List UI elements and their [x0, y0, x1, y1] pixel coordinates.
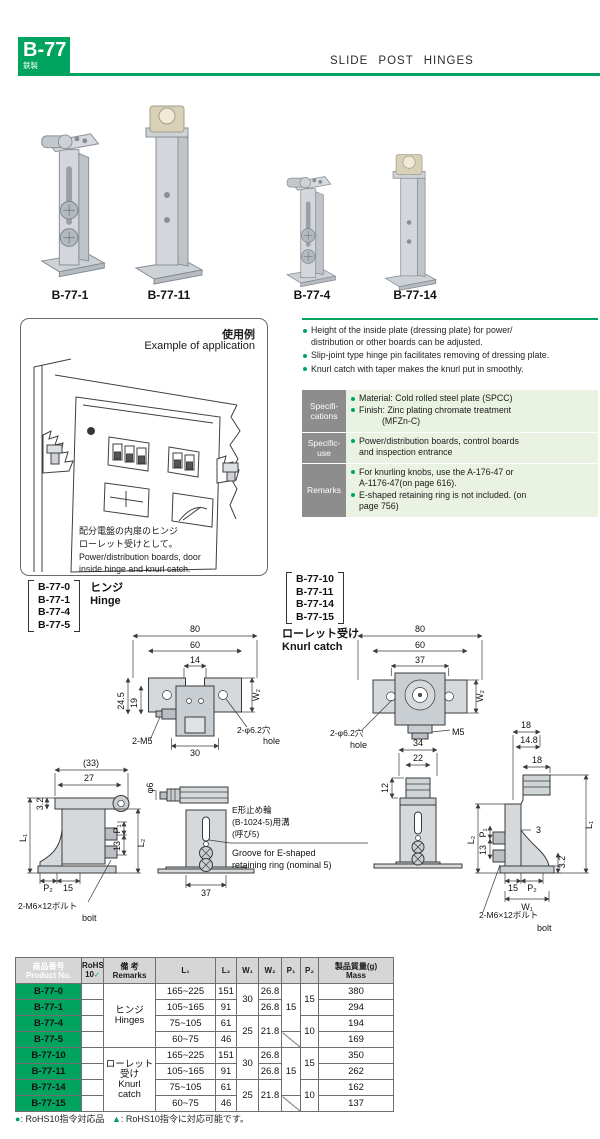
feature-item: Knurl catch with taper makes the knurl p…: [302, 364, 600, 376]
bullet-icon: [351, 470, 355, 474]
product-no-cell: B-77-14: [16, 1080, 82, 1096]
rohs-cell: [82, 1032, 104, 1048]
svg-text:P₂: P₂: [527, 883, 537, 893]
bullet-icon: [303, 354, 307, 358]
svg-text:27: 27: [84, 773, 94, 783]
w1-cell: 25: [237, 1080, 259, 1112]
svg-text:19: 19: [129, 698, 139, 708]
feature-text: Height of the inside plate (dressing pla…: [311, 325, 512, 348]
product-no-cell: B-77-10: [16, 1048, 82, 1064]
product-photo-hinge-large: [30, 112, 118, 284]
svg-text:W₂: W₂: [475, 690, 485, 702]
rohs-triangle-icon: ▲: [112, 1114, 121, 1124]
header-p2: P₂: [301, 958, 319, 984]
product-no-cell: B-77-5: [16, 1032, 82, 1048]
svg-text:13: 13: [112, 841, 122, 851]
feature-text: Slip-joint type hinge pin facilitates re…: [311, 350, 549, 362]
svg-text:3.2: 3.2: [35, 798, 45, 811]
w2-cell: 21.8: [259, 1016, 282, 1048]
p2-cell: 10: [301, 1080, 319, 1112]
mass-cell: 194: [319, 1016, 394, 1032]
w1-cell: 30: [237, 984, 259, 1016]
spec-table: Specifi-cations Material: Cold rolled st…: [302, 390, 598, 518]
svg-text:hole: hole: [263, 736, 280, 746]
mass-cell: 262: [319, 1064, 394, 1080]
svg-text:15: 15: [63, 883, 73, 893]
svg-text:(B-1024-5)用溝: (B-1024-5)用溝: [232, 817, 290, 827]
spec-label: Remarks: [302, 464, 346, 517]
l1-cell: 165~225: [156, 1048, 216, 1064]
page-code-box: B-77 鉄製: [18, 37, 70, 73]
spec-label: Specifi-cations: [302, 390, 346, 432]
p2-cell: 15: [301, 1048, 319, 1080]
header-l1: L₁: [156, 958, 216, 984]
rohs-cell: [82, 1000, 104, 1016]
spec-row-remarks: Remarks For knurling knobs, use the A-17…: [302, 464, 598, 518]
knurl-front-view: [374, 750, 462, 868]
rohs-footnote: ●: RoHS10指令対応品 ▲: RoHS10指令に対応可能です。: [15, 1112, 249, 1125]
svg-text:15: 15: [508, 883, 518, 893]
svg-text:P₁: P₁: [112, 824, 122, 833]
mass-cell: 294: [319, 1000, 394, 1016]
svg-text:12: 12: [380, 783, 390, 793]
svg-text:P₁: P₁: [478, 828, 488, 837]
mass-cell: 169: [319, 1032, 394, 1048]
product-no-cell: B-77-1: [16, 1000, 82, 1016]
product-table-wrap: 商品番号Product No. RoHS 10✓ 備 考Remarks L₁ L…: [15, 957, 394, 1112]
svg-text:L₂: L₂: [136, 838, 146, 847]
w1-cell: 25: [237, 1016, 259, 1048]
table-row: B-77-15 60~75 46 137: [16, 1096, 394, 1112]
table-header-row: 商品番号Product No. RoHS 10✓ 備 考Remarks L₁ L…: [16, 958, 394, 984]
rohs-cell: [82, 1096, 104, 1112]
product-label: B-77-4: [282, 288, 342, 302]
svg-text:3.2: 3.2: [557, 856, 567, 869]
l1-cell: 60~75: [156, 1096, 216, 1112]
l2-cell: 91: [216, 1064, 237, 1080]
w2-cell: 26.8: [259, 984, 282, 1000]
svg-text:L₁: L₁: [18, 834, 28, 842]
product-photo-hinge-small: [278, 160, 346, 292]
mass-cell: 350: [319, 1048, 394, 1064]
svg-text:(呼び5): (呼び5): [232, 829, 260, 839]
svg-text:2-M6×12ボルト: 2-M6×12ボルト: [479, 910, 538, 920]
l2-cell: 61: [216, 1080, 237, 1096]
l2-cell: 91: [216, 1000, 237, 1016]
svg-text:(33): (33): [83, 758, 99, 768]
svg-text:Groove for E-shaped: Groove for E-shaped: [232, 848, 316, 858]
svg-text:E形止め輪: E形止め輪: [232, 805, 272, 815]
l1-cell: 75~105: [156, 1016, 216, 1032]
svg-text:bolt: bolt: [537, 923, 552, 933]
remarks-group-knurl: ローレット受け Knurlcatch: [104, 1048, 156, 1112]
svg-text:22: 22: [413, 753, 423, 763]
l1-cell: 105~165: [156, 1000, 216, 1016]
svg-text:37: 37: [201, 888, 211, 898]
svg-text:30: 30: [190, 748, 200, 758]
svg-text:80: 80: [415, 624, 425, 634]
rohs-cell: [82, 1048, 104, 1064]
p1-cell-na: [282, 1032, 301, 1048]
l1-cell: 165~225: [156, 984, 216, 1000]
svg-text:hole: hole: [350, 740, 367, 750]
rohs-cell: [82, 1080, 104, 1096]
product-photo-knurl-large: [122, 100, 217, 290]
svg-text:18: 18: [532, 755, 542, 765]
knurl-top-view: [358, 636, 482, 739]
mass-cell: 137: [319, 1096, 394, 1112]
dimension-labels: 80 60 14 24.5 19 2-M5 30 2-φ6.2穴 hole W₂…: [18, 624, 594, 933]
caption-line: ローレット受けとして。: [79, 538, 264, 551]
table-row: B-77-11 105~165 91 26.8 262: [16, 1064, 394, 1080]
product-label: B-77-1: [40, 288, 100, 302]
w2-cell: 21.8: [259, 1080, 282, 1112]
w2-cell: 26.8: [259, 1064, 282, 1080]
application-title-en: Example of application: [144, 340, 255, 352]
spec-row-specific-use: Specific-use Power/distribution boards, …: [302, 433, 598, 464]
product-no-cell: B-77-11: [16, 1064, 82, 1080]
p1-cell: 15: [282, 1048, 301, 1096]
page-title: SLIDE POST HINGES: [330, 55, 474, 67]
l2-cell: 46: [216, 1096, 237, 1112]
mass-cell: 380: [319, 984, 394, 1000]
spec-content: For knurling knobs, use the A-176-47 or …: [346, 464, 598, 517]
table-row: B-77-14 75~105 61 25 21.8 10 162: [16, 1080, 394, 1096]
product-no-cell: B-77-4: [16, 1016, 82, 1032]
svg-text:2-M6×12ボルト: 2-M6×12ボルト: [18, 901, 77, 911]
application-example-box: 使用例 Example of application 配分電盤の内扉のヒンジ ロ…: [20, 318, 268, 576]
svg-text:2-φ6.2穴: 2-φ6.2穴: [237, 725, 271, 735]
header-rule: [18, 73, 600, 76]
product-table: 商品番号Product No. RoHS 10✓ 備 考Remarks L₁ L…: [15, 957, 394, 1112]
svg-text:P₂: P₂: [43, 883, 53, 893]
svg-text:60: 60: [415, 640, 425, 650]
feature-text: Knurl catch with taper makes the knurl p…: [311, 364, 524, 376]
bullet-icon: [351, 439, 355, 443]
w2-cell: 26.8: [259, 1048, 282, 1064]
rohs-cell: [82, 1064, 104, 1080]
p2-cell: 15: [301, 984, 319, 1016]
features-list: Height of the inside plate (dressing pla…: [302, 325, 600, 377]
bullet-icon: [351, 397, 355, 401]
bullet-icon: [351, 493, 355, 497]
w2-cell: 26.8: [259, 1000, 282, 1016]
bullet-icon: [303, 329, 307, 333]
spec-label: Specific-use: [302, 433, 346, 463]
header-product-no: 商品番号Product No.: [16, 958, 82, 984]
product-label: B-77-11: [134, 288, 204, 302]
table-row: B-77-1 105~165 91 26.8 294: [16, 1000, 394, 1016]
product-photo-knurl-small: [372, 150, 450, 295]
w1-cell: 30: [237, 1048, 259, 1080]
bullet-icon: [351, 408, 355, 412]
svg-text:bolt: bolt: [82, 913, 97, 923]
product-label: B-77-14: [380, 288, 450, 302]
header-w2: W₂: [259, 958, 282, 984]
l2-cell: 61: [216, 1016, 237, 1032]
mass-cell: 162: [319, 1080, 394, 1096]
svg-text:14.8: 14.8: [520, 735, 538, 745]
header-mass: 製品質量(g)Mass: [319, 958, 394, 984]
rohs-cell: [82, 984, 104, 1000]
features-top-rule: [302, 318, 598, 320]
header-p1: P₁: [282, 958, 301, 984]
bullet-icon: [303, 367, 307, 371]
svg-text:L₁: L₁: [584, 821, 594, 829]
l1-cell: 75~105: [156, 1080, 216, 1096]
remarks-group-hinges: ヒンジHinges: [104, 984, 156, 1048]
p1-cell-na: [282, 1096, 301, 1112]
svg-text:L₂: L₂: [466, 835, 476, 844]
svg-text:φ6: φ6: [145, 783, 155, 794]
feature-item: Slip-joint type hinge pin facilitates re…: [302, 350, 600, 362]
spec-content: Power/distribution boards, control board…: [346, 433, 598, 463]
rohs-check-icon: ✓: [94, 972, 100, 979]
svg-text:2-M5: 2-M5: [132, 736, 153, 746]
svg-text:14: 14: [190, 655, 200, 665]
page-code: B-77: [23, 39, 70, 61]
header-w1: W₁: [237, 958, 259, 984]
table-row: B-77-0 ヒンジHinges 165~225 151 30 26.8 15 …: [16, 984, 394, 1000]
svg-text:13: 13: [478, 845, 488, 855]
l2-cell: 46: [216, 1032, 237, 1048]
svg-text:W₂: W₂: [251, 689, 261, 701]
table-row: B-77-4 75~105 61 25 21.8 10 194: [16, 1016, 394, 1032]
svg-text:60: 60: [190, 640, 200, 650]
header-rohs: RoHS 10✓: [82, 958, 104, 984]
svg-text:34: 34: [413, 738, 423, 748]
svg-text:37: 37: [415, 655, 425, 665]
page-code-subtitle: 鉄製: [23, 61, 70, 70]
l1-cell: 60~75: [156, 1032, 216, 1048]
catalog-page: B-77 鉄製 SLIDE POST HINGES: [0, 0, 600, 1139]
product-no-cell: B-77-0: [16, 984, 82, 1000]
svg-text:M5: M5: [452, 727, 465, 737]
l2-cell: 151: [216, 1048, 237, 1064]
p2-cell: 10: [301, 1016, 319, 1048]
svg-text:3: 3: [536, 825, 541, 835]
p1-cell: 15: [282, 984, 301, 1032]
svg-text:2-φ6.2穴: 2-φ6.2穴: [330, 728, 364, 738]
svg-text:24.5: 24.5: [116, 692, 126, 710]
table-row: B-77-5 60~75 46 169: [16, 1032, 394, 1048]
svg-text:80: 80: [190, 624, 200, 634]
svg-text:retaining ring (nominal 5): retaining ring (nominal 5): [232, 860, 332, 870]
technical-drawings: 80 60 14 24.5 19 2-M5 30 2-φ6.2穴 hole W₂…: [0, 560, 600, 955]
rohs-cell: [82, 1016, 104, 1032]
caption-line: 配分電盤の内扉のヒンジ: [79, 525, 264, 538]
l2-cell: 151: [216, 984, 237, 1000]
table-row: B-77-10 ローレット受け Knurlcatch 165~225 151 3…: [16, 1048, 394, 1064]
product-no-cell: B-77-15: [16, 1096, 82, 1112]
l1-cell: 105~165: [156, 1064, 216, 1080]
feature-item: Height of the inside plate (dressing pla…: [302, 325, 600, 348]
hinge-front-view: [156, 787, 368, 888]
spec-content: Material: Cold rolled steel plate (SPCC)…: [346, 390, 598, 432]
svg-text:18: 18: [521, 720, 531, 730]
header-remarks: 備 考Remarks: [104, 958, 156, 984]
header-l2: L₂: [216, 958, 237, 984]
spec-row-specifications: Specifi-cations Material: Cold rolled st…: [302, 390, 598, 433]
